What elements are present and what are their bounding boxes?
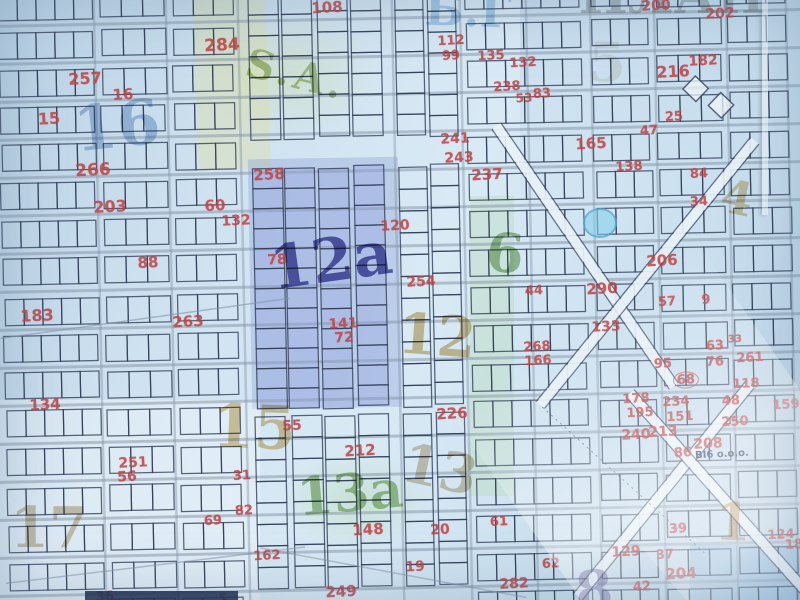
photo-vignette: [0, 0, 800, 600]
map-photo: 16S.A.Б.ГПЛАН5412a61215171313a18 2841082…: [0, 0, 800, 600]
